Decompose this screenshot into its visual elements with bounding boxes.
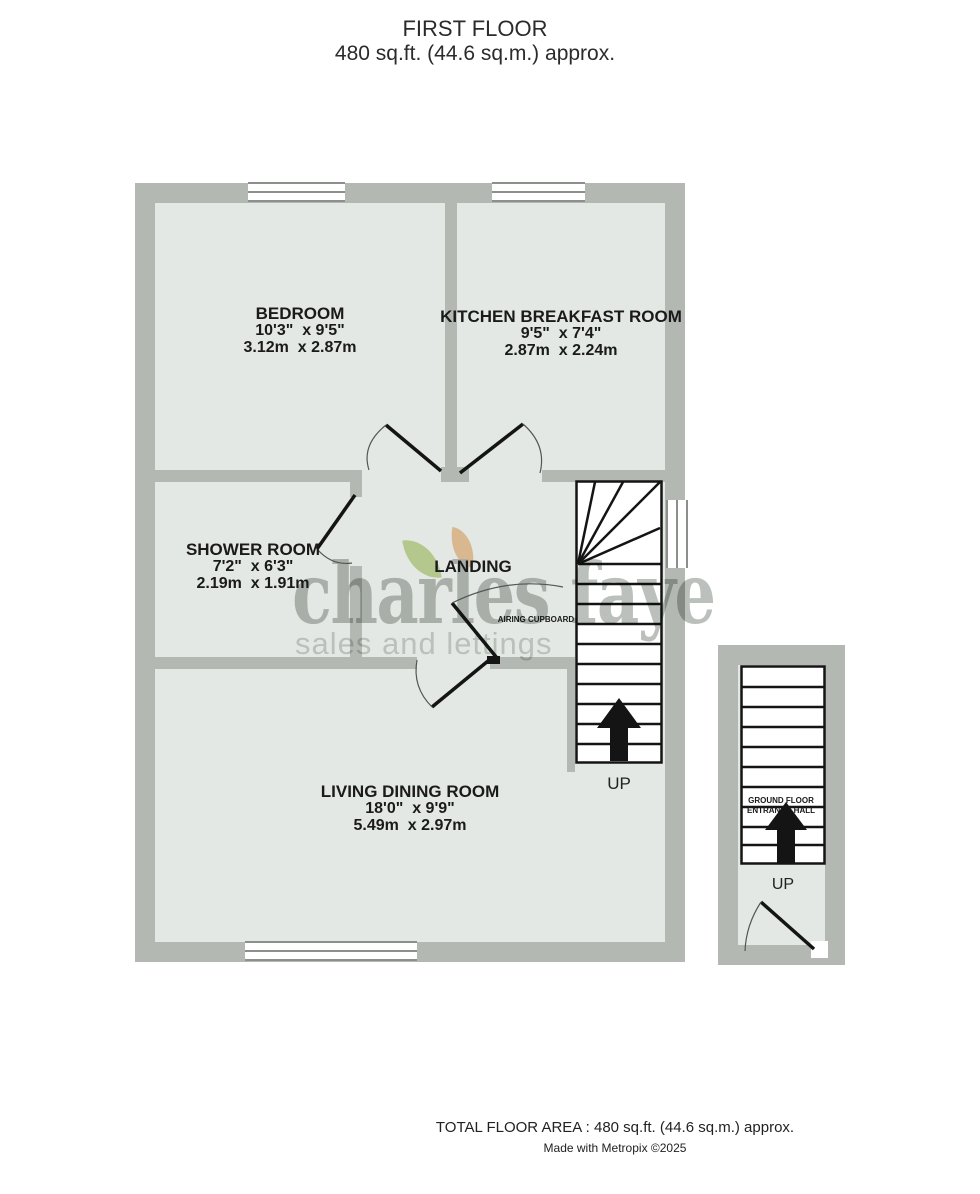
room-label-airing-cupboard: AIRING CUPBOARD (494, 615, 578, 625)
room-dim-imperial: 9'5" x 7'4" (431, 325, 691, 342)
room-dim-imperial: 10'3" x 9'5" (170, 322, 430, 339)
room-dim-imperial: 18'0" x 9'9" (280, 800, 540, 817)
door-leaf-kitchen (460, 424, 523, 473)
room-label-shower: SHOWER ROOM 7'2" x 6'3" 2.19m x 1.91m (158, 541, 348, 592)
up-label-main: UP (575, 774, 663, 794)
door-leaf (761, 902, 814, 949)
door-leaf-airing-cupboard (452, 603, 497, 658)
up-arrow-entrance (740, 790, 826, 870)
up-arrow-icon (765, 802, 807, 863)
page-title: FIRST FLOOR (0, 16, 950, 42)
room-dim-imperial: 7'2" x 6'3" (158, 558, 348, 575)
floor-plan-page: FIRST FLOOR 480 sq.ft. (44.6 sq.m.) appr… (0, 0, 980, 1194)
door-swing-arc (523, 424, 542, 473)
room-label-bedroom: BEDROOM 10'3" x 9'5" 3.12m x 2.87m (170, 305, 430, 356)
room-dim-metric: 5.49m x 2.97m (280, 817, 540, 834)
door-swing-arc (367, 425, 386, 470)
up-label-entrance: UP (740, 876, 826, 894)
room-dim-metric: 3.12m x 2.87m (170, 339, 430, 356)
room-name: BEDROOM (170, 305, 430, 322)
page-subtitle: 480 sq.ft. (44.6 sq.m.) approx. (0, 42, 950, 66)
total-floor-area: TOTAL FLOOR AREA : 480 sq.ft. (44.6 sq.m… (365, 1119, 865, 1136)
room-name: KITCHEN BREAKFAST ROOM (431, 308, 691, 325)
door-leaf-bedroom (386, 425, 441, 471)
room-label-living: LIVING DINING ROOM 18'0" x 9'9" 5.49m x … (280, 783, 540, 834)
door-swing-arc (745, 902, 761, 951)
room-name: SHOWER ROOM (158, 541, 348, 558)
room-dim-metric: 2.19m x 1.91m (158, 575, 348, 592)
door-leaf-living (432, 661, 488, 707)
door-swing-arc (416, 660, 432, 707)
credit-line: Made with Metropix ©2025 (365, 1141, 865, 1155)
room-dim-metric: 2.87m x 2.24m (431, 342, 691, 359)
room-name: LIVING DINING ROOM (280, 783, 540, 800)
door-swing-arc (452, 584, 563, 603)
room-label-landing: LANDING (400, 558, 546, 575)
room-label-kitchen: KITCHEN BREAKFAST ROOM 9'5" x 7'4" 2.87m… (431, 308, 691, 359)
